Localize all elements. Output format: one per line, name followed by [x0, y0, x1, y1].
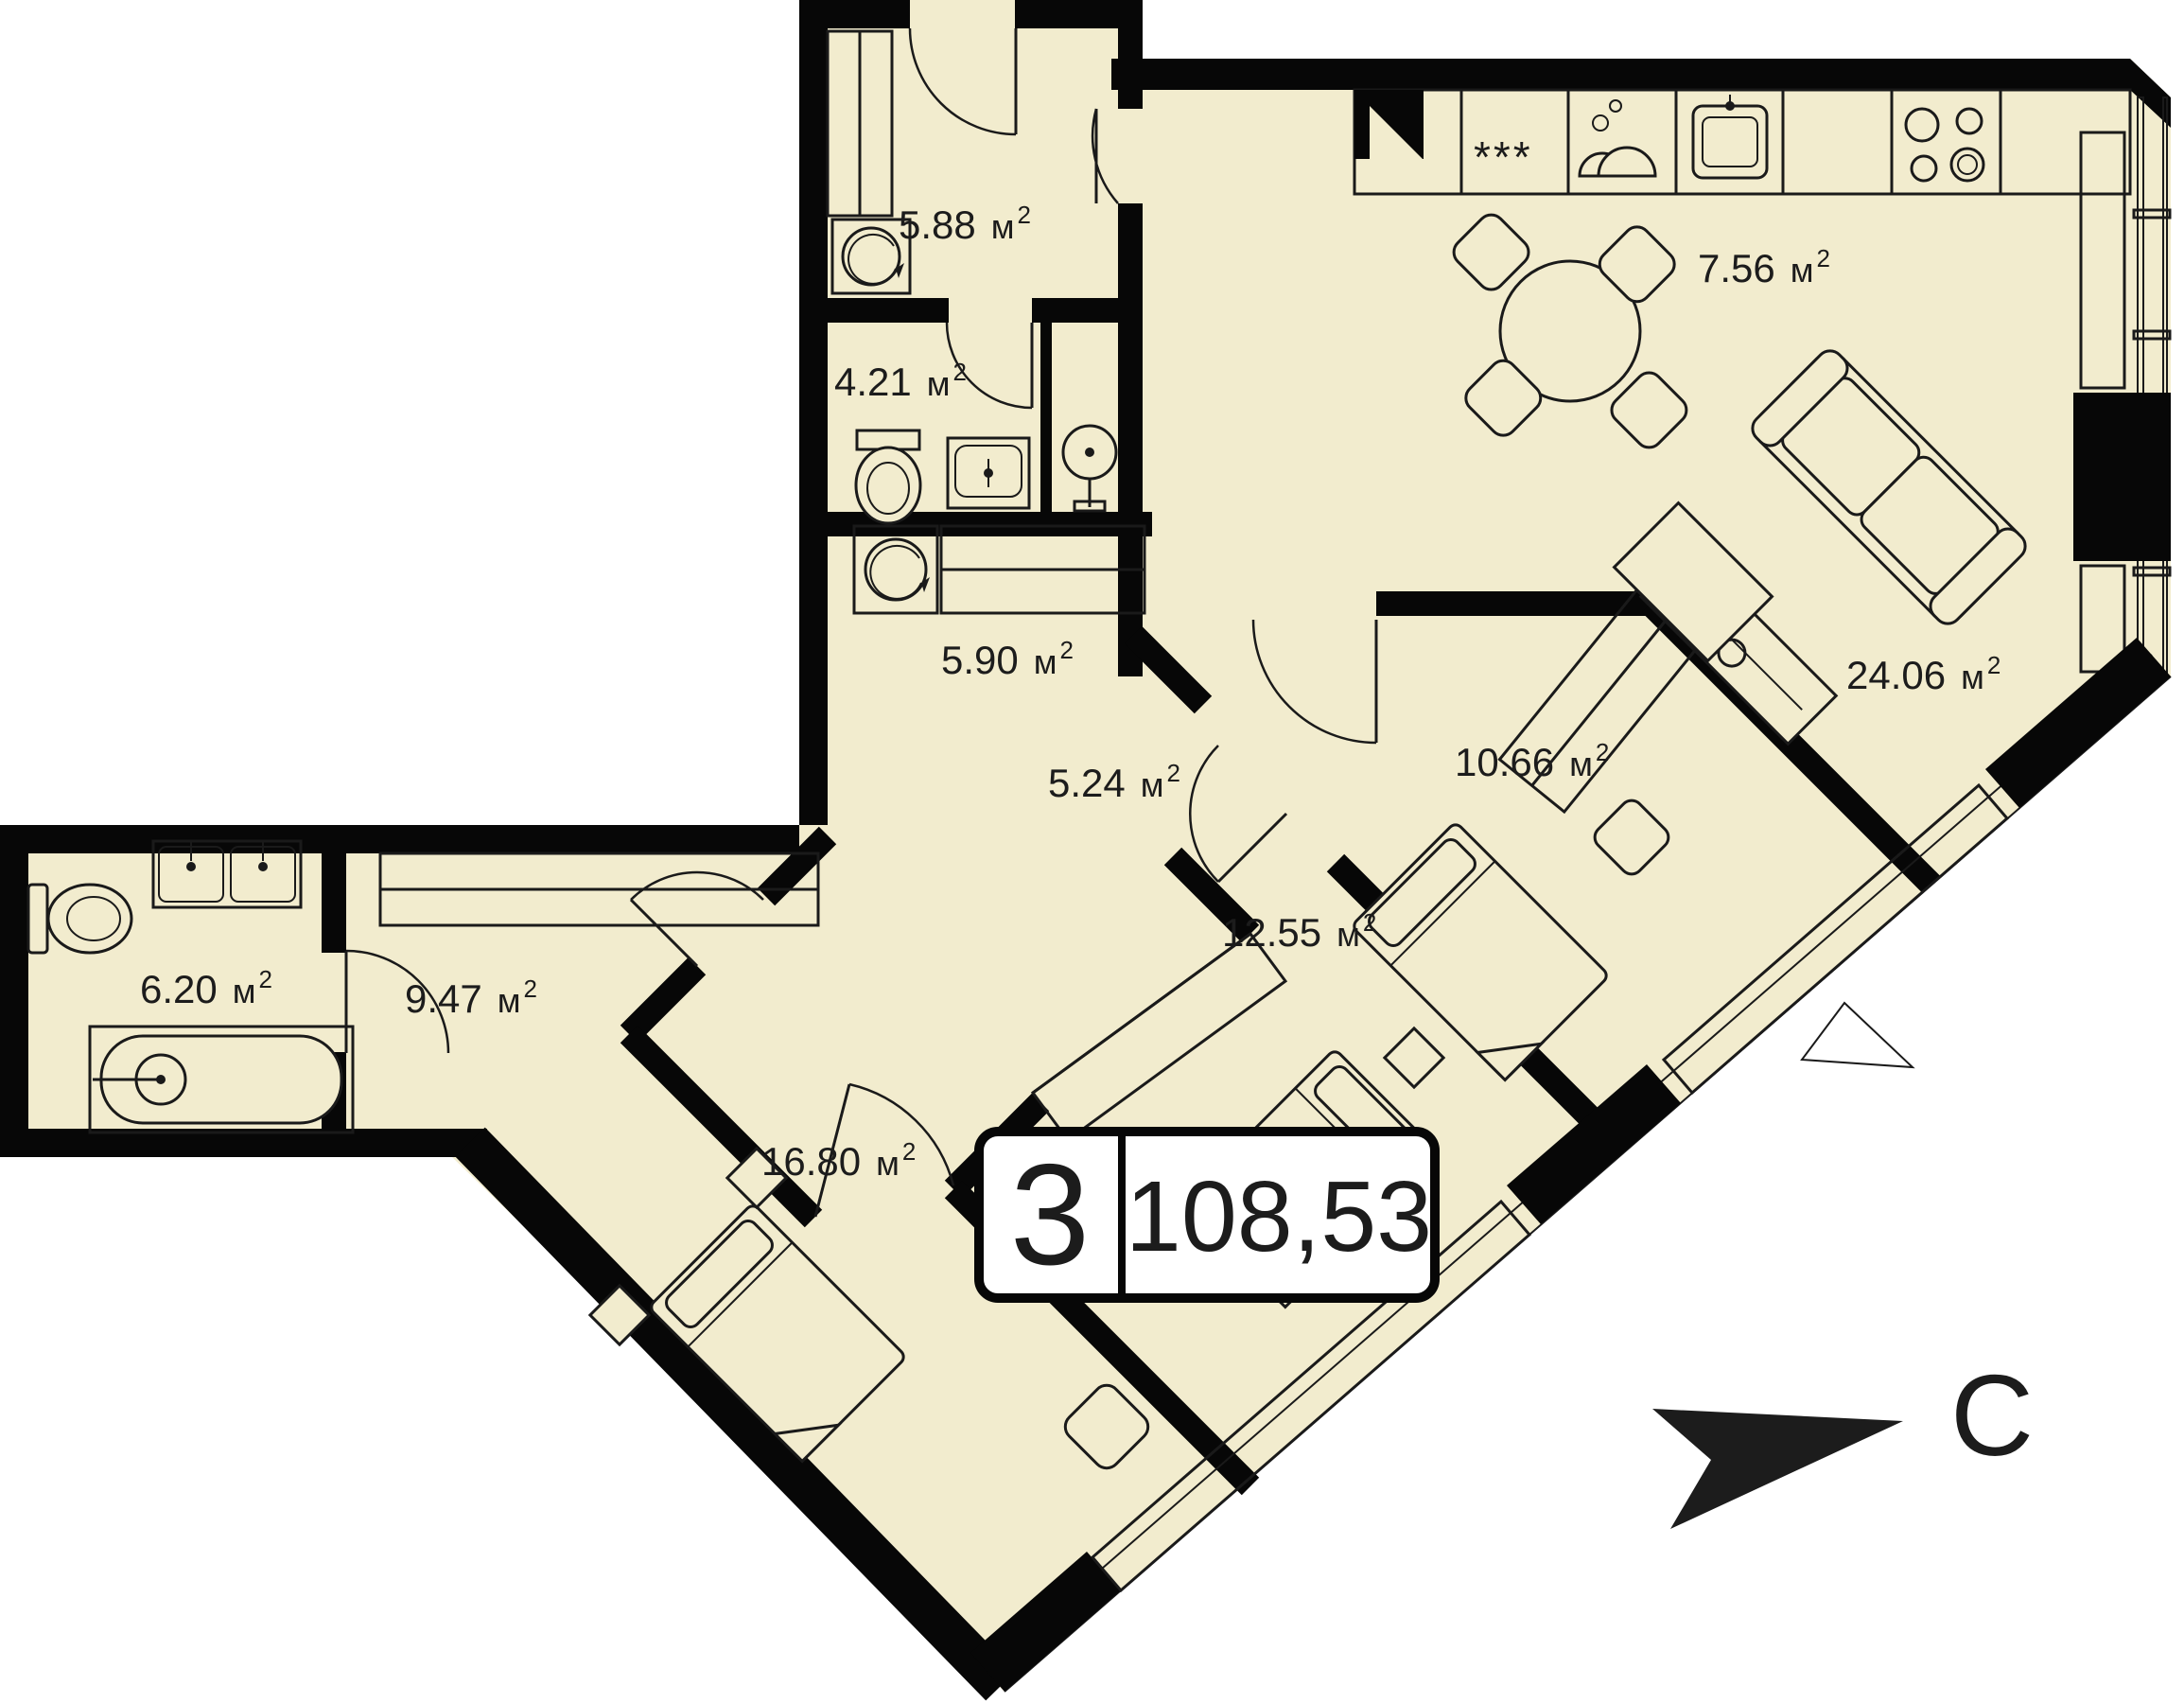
- room-label-entry: 5.88м2: [899, 201, 1031, 247]
- bathtub: [90, 1027, 353, 1132]
- room-label-kitchen: 7.56м2: [1698, 244, 1830, 290]
- area-badge: 3 108,53: [979, 1132, 1435, 1298]
- north-arrow: С: [1652, 1351, 2034, 1529]
- room-label-wc: 4.21м2: [834, 358, 967, 404]
- window-flap: [1802, 1003, 1913, 1067]
- room-label-hall: 5.24м2: [1048, 759, 1180, 805]
- badge-total-area: 108,53: [1126, 1161, 1432, 1273]
- room-label-living: 24.06м2: [1846, 651, 2001, 697]
- north-label: С: [1950, 1351, 2034, 1480]
- room-label-corridor: 9.47м2: [405, 974, 537, 1021]
- room-label-master: 16.80м2: [761, 1137, 916, 1184]
- toilet-icon: [856, 430, 920, 523]
- room-label-laundry: 5.90м2: [941, 636, 1074, 682]
- room-label-bedroom2: 12.55м2: [1222, 908, 1376, 955]
- room-label-bedroom1: 10.66м2: [1455, 738, 1609, 784]
- north-arrow-icon: [1652, 1409, 1903, 1529]
- floor-plan-page: ***: [0, 0, 2184, 1703]
- badge-rooms-count: 3: [1010, 1134, 1091, 1295]
- floor-plan-svg: ***: [0, 0, 2184, 1703]
- room-label-bath: 6.20м2: [140, 965, 272, 1011]
- fridge-icon: ***: [1474, 132, 1533, 182]
- wall-pillar: [2073, 393, 2171, 561]
- toilet-icon: [28, 885, 131, 953]
